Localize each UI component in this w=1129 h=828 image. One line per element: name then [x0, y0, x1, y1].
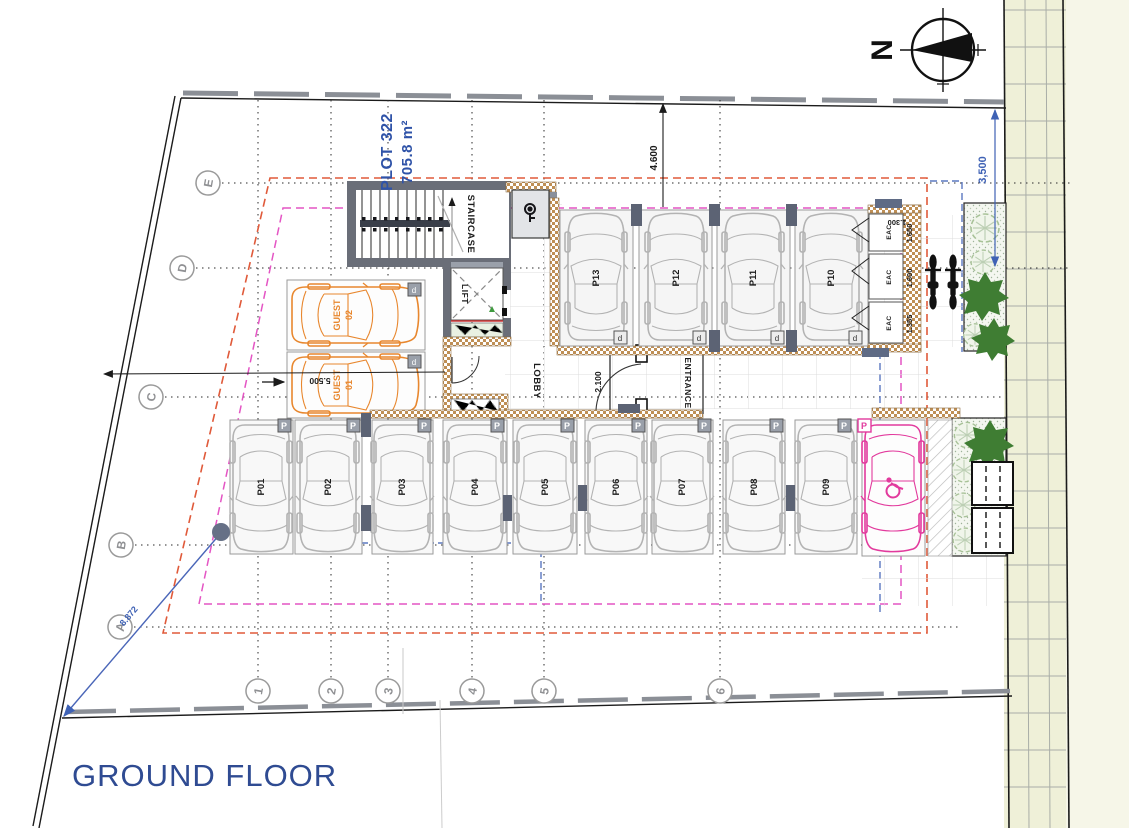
guest-stall-label: GUEST	[332, 369, 342, 401]
stall-label: P12	[671, 270, 682, 287]
eac-room2-dim: 1.600	[905, 269, 914, 288]
stall-label: P07	[677, 479, 688, 496]
parking-symbol: P	[350, 421, 356, 431]
grid-bubble-B: B	[107, 531, 135, 559]
parking-stall-P05: P05 P	[513, 419, 577, 554]
guest-stall-label: GUEST	[332, 299, 342, 331]
stall-label: P11	[748, 269, 759, 286]
plot-name: PLOT 322	[379, 113, 396, 191]
staircase-label: STAIRCASE	[465, 195, 476, 254]
parking-symbol: P	[841, 421, 847, 431]
entrance-label: ENTRANCE	[683, 357, 693, 408]
eac-label: EAC	[886, 315, 893, 330]
parking-stall-accessible: P	[858, 419, 925, 556]
stall-label: P13	[591, 270, 602, 287]
wheel-stop-mark: d	[412, 286, 416, 295]
parking-symbol: P	[701, 421, 707, 431]
parking-symbol: P	[861, 421, 867, 431]
lift-label: LIFT	[460, 284, 470, 304]
wheel-stop-mark: d	[412, 358, 416, 367]
wheel-stop-mark: d	[853, 334, 857, 343]
eac-label: EAC	[886, 269, 893, 284]
lobby-label: LOBBY	[531, 363, 542, 399]
parking-symbol: P	[635, 421, 641, 431]
north-arrow: N	[866, 8, 986, 92]
parking-symbol: P	[494, 421, 500, 431]
stall-label: P06	[611, 479, 622, 496]
planting-bed-top-right	[959, 203, 1015, 361]
wheel-stop-mark: d	[697, 334, 701, 343]
grid-bubble-D: D	[168, 254, 196, 282]
eac-room3-dim: 1.355	[905, 315, 914, 334]
parking-stall-P06: P06 P	[584, 419, 648, 554]
parking-symbol: P	[564, 421, 570, 431]
parking-stall-P07: P07 P	[650, 419, 714, 554]
plot-label: PLOT 322 705.8 m²	[379, 113, 416, 191]
neighbour-pavement-strip	[1004, 0, 1129, 828]
floor-plan-drawing: E D C B A 1 2 3 4 5 6	[0, 0, 1129, 828]
stall-label: P04	[470, 478, 481, 496]
parking-stall-P03: P03 P	[370, 419, 434, 554]
stall-label: P05	[540, 478, 551, 496]
hatched-strip	[928, 420, 952, 556]
parking-stall-P09: P09 P	[794, 419, 858, 554]
grid-row-bubbles: E D C B A	[106, 169, 222, 641]
parking-symbol: P	[281, 421, 287, 431]
stall-label: P01	[256, 478, 267, 496]
survey-point	[212, 523, 230, 541]
staircase: STAIRCASE	[348, 182, 510, 266]
stall-label: P03	[397, 479, 408, 496]
north-letter: N	[866, 39, 899, 61]
eac-width-dim: 1.300	[888, 218, 907, 227]
parking-stall-P02: P02 P	[295, 419, 362, 554]
dim-top: 4.600	[649, 145, 660, 170]
parking-stall-P08: P08 P	[722, 419, 786, 554]
stall-label: P02	[323, 479, 334, 496]
stall-label: P08	[749, 479, 760, 496]
stair-handrail	[360, 220, 450, 227]
stall-label: P10	[826, 270, 837, 287]
drawing-title: GROUND FLOOR	[72, 758, 337, 793]
lift-core: LIFT	[443, 262, 511, 418]
parking-row-upper: P13 d P12 d P11 d P10 d	[550, 198, 868, 355]
guest-stall-number: 02	[344, 310, 354, 320]
parking-symbol: P	[421, 421, 427, 431]
parking-stall-P04: P04 P	[443, 419, 507, 554]
grid-bubble-6: 6	[706, 677, 734, 705]
parking-stall-P01: P01 P	[229, 419, 293, 554]
service-boxes	[972, 462, 1013, 553]
north-pointer-icon	[912, 33, 972, 62]
grid-bubble-C: C	[137, 383, 165, 411]
grid-bubble-3: 3	[374, 677, 402, 705]
floor-plan-page: E D C B A 1 2 3 4 5 6	[0, 0, 1129, 828]
wheel-stop-mark: d	[775, 334, 779, 343]
dim-left: 5.500	[309, 376, 331, 386]
plot-area: 705.8 m²	[399, 120, 416, 184]
grid-bubble-1: 1	[244, 677, 272, 705]
grid-bubble-2: 2	[317, 677, 345, 705]
duct-room	[506, 182, 557, 238]
parking-stall-P12: P12 d	[639, 210, 712, 346]
dim-right: 3,500	[977, 156, 989, 184]
planting-bed-bottom-right	[951, 418, 1014, 556]
parking-row-lower: P01 P P02 P P03 P P04 P P05 P P06 P	[229, 404, 960, 556]
parking-stall-P10: P10 d	[795, 210, 868, 346]
stall-label: P09	[821, 479, 832, 496]
parking-stall-P11: P11 d	[717, 210, 790, 346]
grid-bubble-E: E	[194, 169, 222, 197]
wheel-stop-mark: d	[618, 334, 622, 343]
parking-symbol: P	[773, 421, 779, 431]
guest-stall-number: 01	[344, 380, 354, 390]
parking-stall-P13: P13 d	[560, 210, 633, 346]
